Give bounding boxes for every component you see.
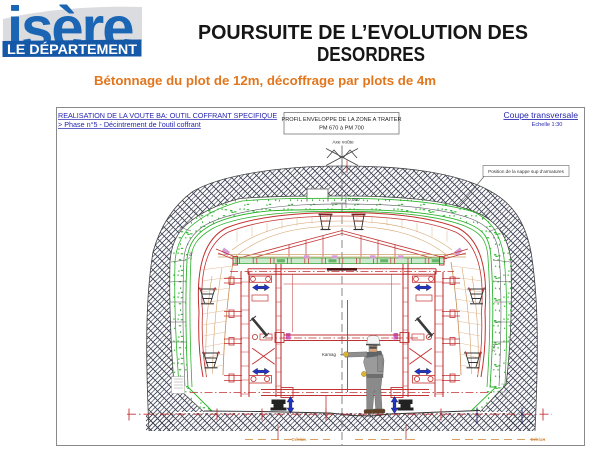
svg-text:Déblais: Déblais — [292, 437, 307, 442]
svg-text:DESORDRES: DESORDRES — [317, 43, 425, 66]
svg-text:Position de la nappe sup d’arm: Position de la nappe sup d’armatures — [488, 169, 565, 174]
svg-text:REALISATION DE LA VOUTE BA: OU: REALISATION DE LA VOUTE BA: OUTIL COFFRA… — [58, 111, 277, 120]
svg-text:POURSUITE DE L’EVOLUTION DES: POURSUITE DE L’EVOLUTION DES — [198, 21, 528, 44]
svg-text:Bétonnage du plot de 12m, déco: Bétonnage du plot de 12m, décoffrage par… — [94, 74, 436, 88]
svg-text:Coupe transversale: Coupe transversale — [503, 110, 578, 120]
svg-text:LE DÉPARTEMENT: LE DÉPARTEMENT — [7, 41, 137, 57]
svg-text:Kamag: Kamag — [322, 352, 336, 357]
svg-text:Déblais: Déblais — [531, 437, 546, 442]
svg-text:> Phase n°5 - Décintrement de: > Phase n°5 - Décintrement de l’outil co… — [58, 120, 201, 129]
svg-text:Echelle 1:30: Echelle 1:30 — [532, 122, 563, 128]
svg-text:PROFIL ENVELOPPE DE LA ZONE A: PROFIL ENVELOPPE DE LA ZONE A TRAITER — [282, 117, 402, 123]
svg-text:2.44: 2.44 — [491, 343, 497, 352]
svg-text:Axe voûte: Axe voûte — [332, 140, 354, 146]
svg-text:0,050: 0,050 — [348, 197, 360, 202]
svg-text:PM 670 à PM 700: PM 670 à PM 700 — [319, 126, 364, 132]
